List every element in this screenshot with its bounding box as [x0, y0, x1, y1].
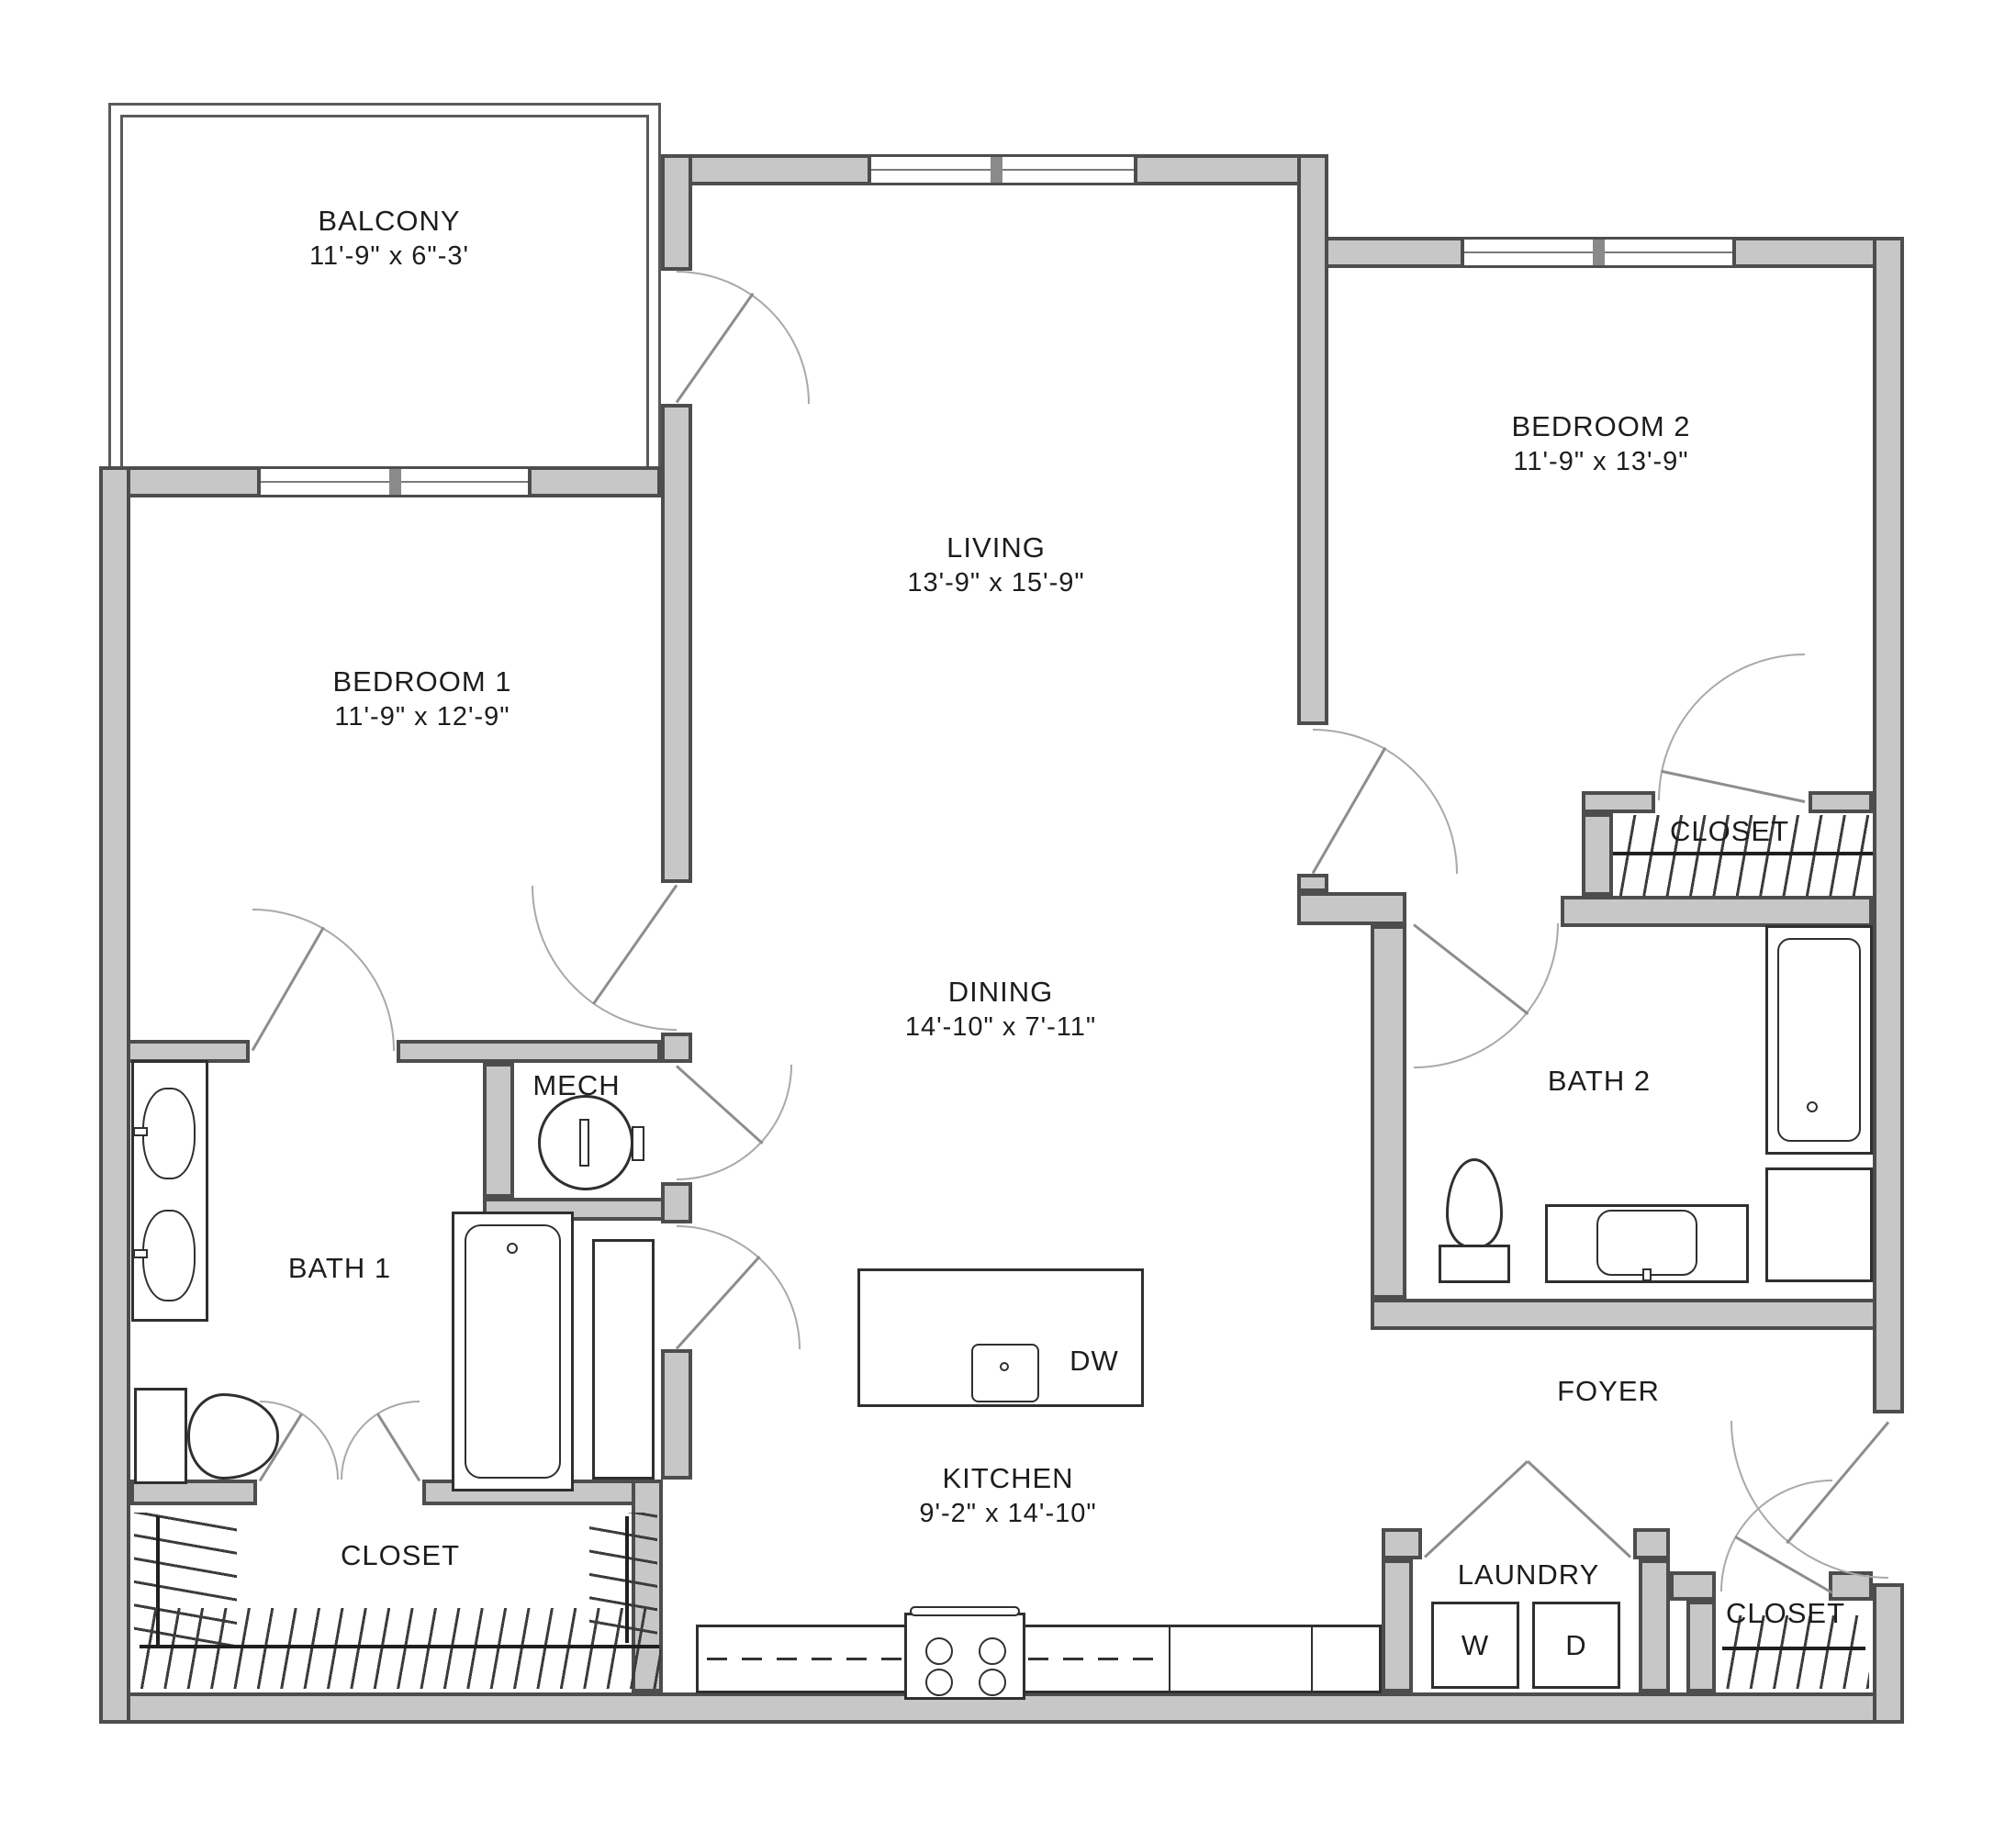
label-dishwasher: DW	[1070, 1344, 1119, 1379]
label-dryer: D	[1565, 1628, 1586, 1663]
room-dims: 14'-10" x 7'-11"	[905, 1010, 1096, 1044]
wall-segment	[1297, 874, 1328, 892]
wall-segment	[1382, 1528, 1422, 1559]
window-mullion	[991, 157, 1002, 183]
counter-divider	[1311, 1627, 1313, 1691]
appliance-letter: DW	[1070, 1344, 1119, 1379]
room-name: CLOSET	[341, 1538, 460, 1573]
wall-segment	[1371, 925, 1406, 1299]
wall-segment	[1639, 1559, 1670, 1692]
wall-segment	[661, 154, 871, 185]
toilet-tank	[1439, 1245, 1510, 1283]
water-heater-tab	[632, 1126, 644, 1161]
toilet-bowl	[1446, 1158, 1503, 1248]
wall-segment	[661, 1033, 692, 1063]
counter-divider	[1169, 1627, 1170, 1691]
door-arc	[1414, 923, 1559, 1068]
closet-rod	[1722, 1647, 1865, 1650]
window-glass-line	[871, 169, 1134, 171]
door-leaf	[1424, 1460, 1529, 1558]
island-sink	[971, 1344, 1039, 1402]
wall-segment	[1297, 892, 1406, 925]
room-label-bedroom-2: BEDROOM 2 11'-9" x 13'-9"	[1511, 409, 1690, 479]
door-arc	[341, 1401, 420, 1480]
appliance-letter: W	[1462, 1628, 1489, 1663]
wall-segment	[1582, 813, 1613, 896]
wall-segment	[1582, 791, 1655, 813]
stove-handle	[910, 1606, 1020, 1616]
sink-basin	[142, 1210, 196, 1301]
closet-hatch	[134, 1608, 661, 1689]
bathtub-drain	[1807, 1101, 1818, 1112]
room-name: LAUNDRY	[1458, 1558, 1600, 1592]
linen-cabinet	[1765, 1167, 1873, 1282]
wall-segment	[1297, 154, 1328, 725]
room-name: BATH 2	[1548, 1064, 1651, 1099]
room-label-living: LIVING 13'-9" x 15'-9"	[907, 531, 1084, 600]
floor-plan: BALCONY 11'-9" x 6"-3' BEDROOM 1 11'-9" …	[0, 0, 2016, 1843]
room-label-closet-foyer: CLOSET	[1726, 1596, 1845, 1631]
shower-stall	[592, 1239, 655, 1480]
room-name: BEDROOM 2	[1511, 409, 1690, 444]
label-washer: W	[1462, 1628, 1489, 1663]
stove-burner	[979, 1669, 1006, 1696]
door-arc	[260, 1401, 339, 1480]
room-label-dining: DINING 14'-10" x 7'-11"	[905, 975, 1096, 1044]
door-arc	[677, 271, 810, 404]
sink-basin	[1596, 1210, 1697, 1276]
closet-rod	[1613, 852, 1873, 855]
room-label-bedroom-1: BEDROOM 1 11'-9" x 12'-9"	[332, 665, 511, 734]
wall-segment	[99, 466, 130, 1724]
wall-segment	[1873, 237, 1904, 1413]
sink-basin	[142, 1088, 196, 1179]
room-label-laundry: LAUNDRY	[1458, 1558, 1600, 1592]
room-label-closet-bedroom-2: CLOSET	[1670, 814, 1789, 849]
wall-segment	[397, 1040, 661, 1063]
room-label-mech: MECH	[532, 1068, 620, 1103]
window-mullion	[389, 469, 401, 495]
wall-segment	[661, 1182, 692, 1223]
stove-burner	[979, 1637, 1006, 1665]
wall-segment	[661, 1349, 692, 1480]
door-arc	[677, 1225, 801, 1349]
wall-segment	[1670, 1571, 1716, 1601]
room-dims: 11'-9" x 13'-9"	[1511, 444, 1690, 479]
door-leaf	[1527, 1460, 1631, 1558]
faucet	[133, 1249, 148, 1258]
room-name: MECH	[532, 1068, 620, 1103]
room-dims: 9'-2" x 14'-10"	[919, 1496, 1096, 1531]
upper-cabinet-dashed-line	[707, 1658, 902, 1660]
bathtub-inner	[465, 1224, 561, 1479]
room-name: BEDROOM 1	[332, 665, 511, 699]
water-heater-slot	[579, 1119, 589, 1167]
door-arc	[1658, 653, 1805, 800]
room-name: FOYER	[1557, 1374, 1660, 1409]
island-faucet	[1000, 1362, 1009, 1371]
room-label-balcony: BALCONY 11'-9" x 6"-3'	[309, 204, 469, 274]
wall-segment	[528, 466, 661, 497]
wall-segment	[483, 1063, 514, 1198]
closet-rod	[140, 1645, 659, 1648]
wall-segment	[1382, 1559, 1413, 1692]
appliance-letter: D	[1565, 1628, 1586, 1663]
room-name: BATH 1	[288, 1251, 391, 1286]
bathtub-drain	[507, 1243, 518, 1254]
wall-segment	[1633, 1528, 1670, 1559]
room-label-bath-1: BATH 1	[288, 1251, 391, 1286]
room-name: DINING	[905, 975, 1096, 1010]
window-mullion	[1593, 240, 1605, 265]
wall-segment	[661, 404, 692, 883]
wall-segment	[1809, 791, 1873, 813]
room-name: KITCHEN	[919, 1461, 1096, 1496]
wall-segment	[661, 154, 692, 271]
faucet	[133, 1127, 148, 1136]
room-label-foyer: FOYER	[1557, 1374, 1660, 1409]
stove	[904, 1613, 1025, 1700]
wall-segment	[1873, 1583, 1904, 1724]
window	[871, 154, 1134, 185]
balcony-railing-inner	[120, 115, 649, 466]
stove-burner	[925, 1669, 953, 1696]
door-arc	[1313, 729, 1458, 874]
stove-burner	[925, 1637, 953, 1665]
room-label-kitchen: KITCHEN 9'-2" x 14'-10"	[919, 1461, 1096, 1531]
room-name: LIVING	[907, 531, 1084, 565]
window	[261, 466, 528, 497]
wall-segment	[1371, 1299, 1904, 1330]
room-label-bath-2: BATH 2	[1548, 1064, 1651, 1099]
room-name: BALCONY	[309, 204, 469, 239]
room-dims: 13'-9" x 15'-9"	[907, 565, 1084, 600]
door-arc	[532, 886, 677, 1031]
room-dims: 11'-9" x 12'-9"	[332, 699, 511, 734]
bathtub-inner	[1777, 938, 1861, 1142]
room-name: CLOSET	[1726, 1596, 1845, 1631]
wall-segment	[1561, 896, 1873, 927]
room-label-closet-bedroom-1: CLOSET	[341, 1538, 460, 1573]
room-name: CLOSET	[1670, 814, 1789, 849]
room-dims: 11'-9" x 6"-3'	[309, 239, 469, 274]
upper-cabinet-dashed-line	[1028, 1658, 1166, 1660]
toilet-tank	[134, 1388, 187, 1484]
wall-segment	[1686, 1601, 1716, 1692]
window	[1464, 237, 1732, 268]
faucet	[1642, 1268, 1652, 1281]
